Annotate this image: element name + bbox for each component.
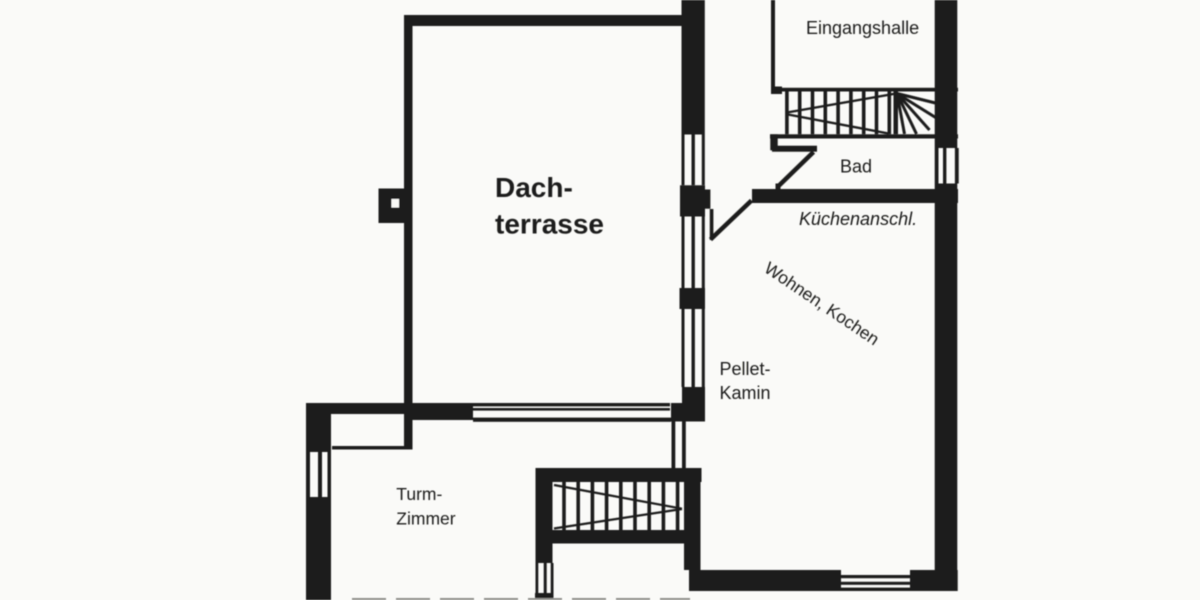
svg-text:Bad: Bad [840, 157, 872, 177]
svg-text:Kamin: Kamin [720, 383, 771, 403]
svg-text:terrasse: terrasse [495, 209, 604, 240]
svg-text:Zimmer: Zimmer [396, 508, 455, 528]
svg-text:Eingangshalle: Eingangshalle [806, 18, 919, 38]
svg-text:Turm-: Turm- [396, 484, 442, 504]
svg-text:Küchenanschl.: Küchenanschl. [799, 209, 917, 229]
svg-text:Pellet-: Pellet- [720, 359, 771, 379]
svg-text:Dach-: Dach- [495, 172, 573, 203]
